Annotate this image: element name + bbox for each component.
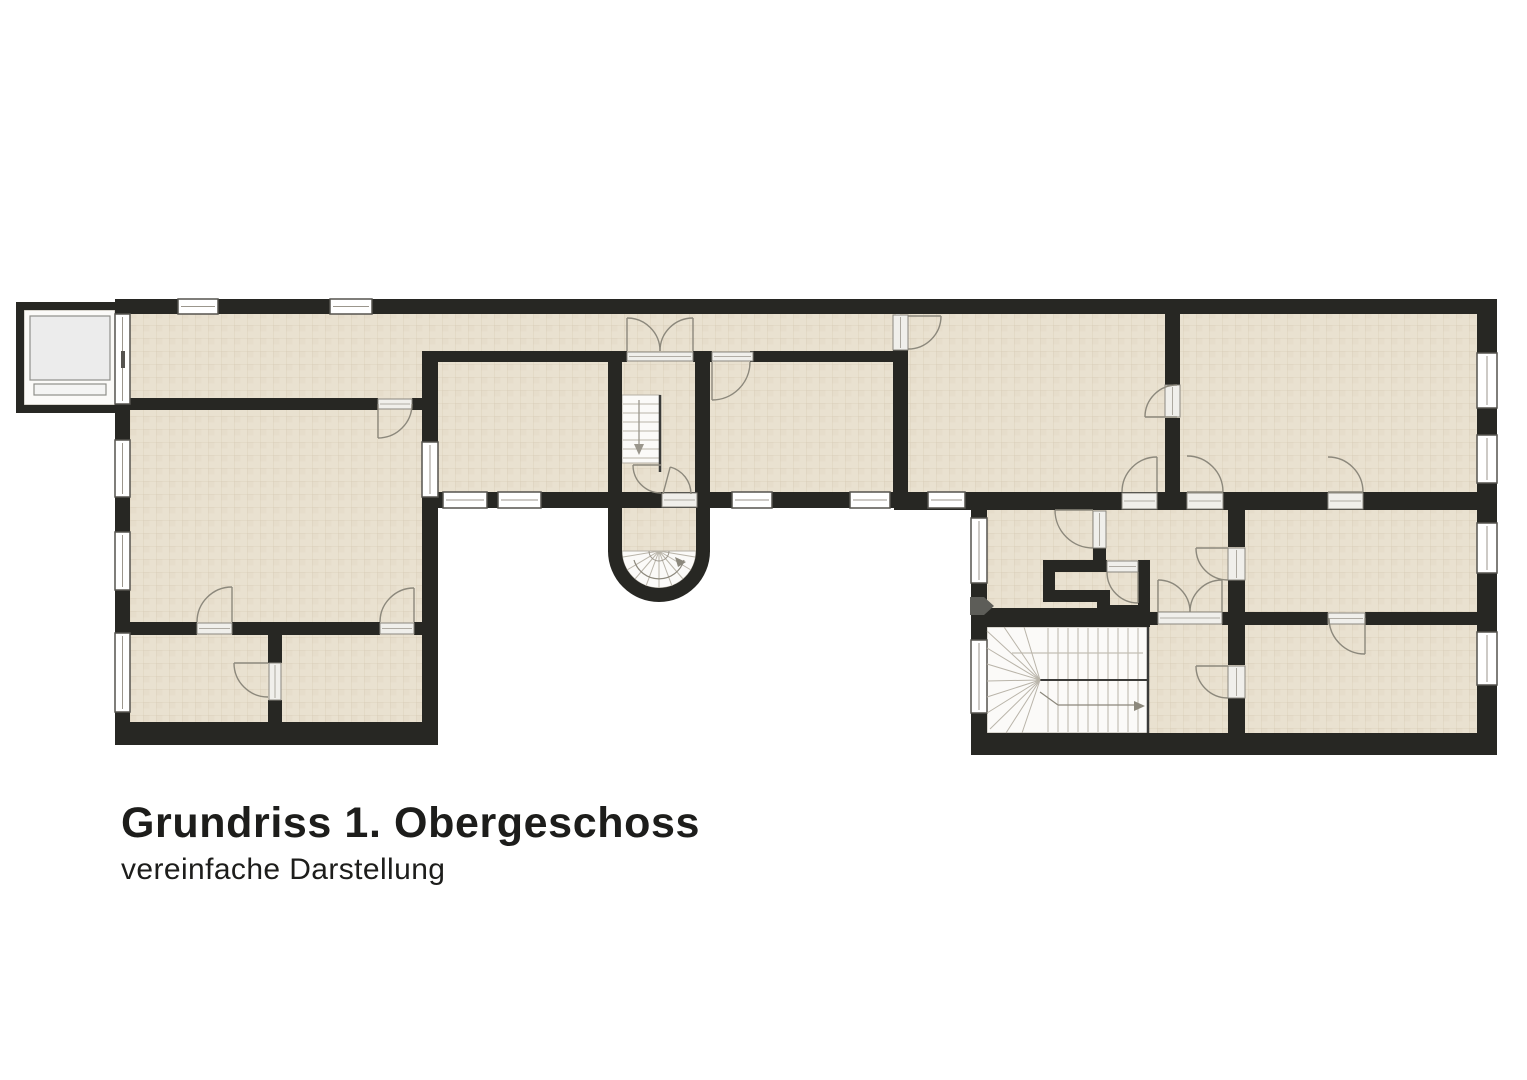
wall-segment — [1043, 590, 1100, 602]
wall-segment — [695, 362, 710, 492]
wall-segment — [750, 351, 908, 362]
floors-layer — [128, 312, 1482, 740]
wall-segment — [893, 350, 908, 492]
wall-segment — [608, 492, 622, 552]
wall-segment — [232, 622, 380, 635]
floor-plan-drawing — [0, 0, 1527, 1080]
wall-segment — [412, 398, 438, 410]
wall-segment — [971, 733, 1497, 755]
wall-segment — [1228, 698, 1245, 735]
wall-segment — [1365, 612, 1478, 625]
floor-area — [900, 312, 1180, 498]
floor-area — [430, 358, 620, 498]
wall-segment — [422, 351, 627, 362]
elevator-detail — [121, 351, 125, 368]
wall-segment — [268, 635, 282, 663]
wall-segment — [115, 722, 437, 745]
floorplan-canvas: Grundriss 1. Obergeschoss vereinfache Da… — [0, 0, 1527, 1080]
wall-segment — [16, 405, 117, 413]
wall-segment — [117, 398, 378, 410]
wall-segment — [971, 608, 1150, 627]
wall-segment — [693, 351, 712, 362]
wall-segment — [422, 353, 438, 745]
floor-area — [700, 358, 900, 498]
floor-area — [1172, 312, 1482, 498]
plan-title: Grundriss 1. Obergeschoss — [121, 801, 700, 846]
wall-segment — [16, 302, 24, 413]
plan-subtitle: vereinfache Darstellung — [121, 853, 700, 888]
title-block: Grundriss 1. Obergeschoss vereinfache Da… — [121, 801, 700, 887]
wall-segment — [1228, 505, 1245, 547]
elevator-detail — [34, 384, 106, 395]
wall-segment — [268, 700, 282, 723]
wall-segment — [893, 299, 908, 314]
wall-segment — [696, 492, 710, 552]
elevator-detail — [30, 316, 110, 380]
wall-segment — [1165, 314, 1180, 385]
wall-segment — [1222, 612, 1328, 625]
stair-area — [622, 395, 660, 463]
wall-segment — [1165, 418, 1180, 495]
wall-segment — [608, 351, 622, 492]
wall-segment — [117, 299, 1497, 314]
wall-segment — [414, 622, 438, 635]
wall-segment — [16, 302, 117, 310]
wall-segment — [1150, 612, 1158, 625]
